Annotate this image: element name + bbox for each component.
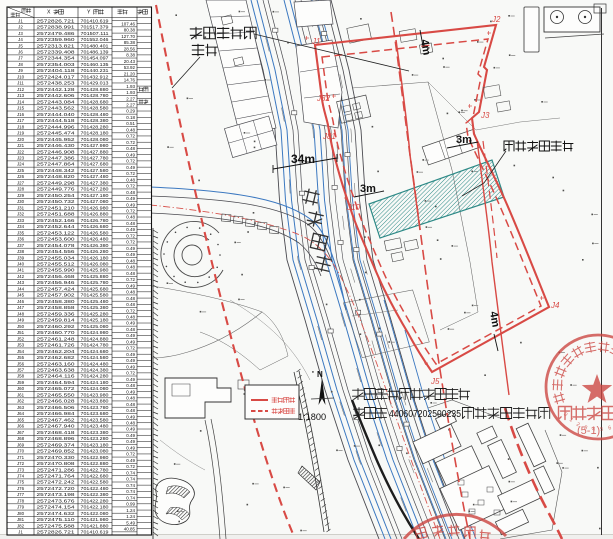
svg-text:2572450.254: 2572450.254 <box>37 193 76 198</box>
svg-text:127.70: 127.70 <box>121 34 135 39</box>
svg-text:0.74: 0.74 <box>126 489 135 494</box>
svg-text:0.48: 0.48 <box>126 296 135 301</box>
svg-text:J2: J2 <box>491 15 501 24</box>
svg-text:J3: J3 <box>18 31 23 36</box>
svg-text:2572459.814: 2572459.814 <box>37 318 76 323</box>
svg-text:J72: J72 <box>17 461 25 466</box>
svg-text:0.49: 0.49 <box>126 333 135 338</box>
svg-text:2572448.342: 2572448.342 <box>37 168 76 173</box>
svg-text:701423.280: 701423.280 <box>81 436 110 441</box>
svg-text:2572445.952: 2572445.952 <box>37 137 76 142</box>
svg-text:2572444.040: 2572444.040 <box>37 112 76 117</box>
svg-text:2572456.468: 2572456.468 <box>37 274 76 279</box>
svg-text:8.38: 8.38 <box>126 53 135 58</box>
svg-text:2572838.991: 2572838.991 <box>37 25 76 30</box>
svg-text:J53: J53 <box>17 343 25 348</box>
svg-text:J48: J48 <box>17 311 25 316</box>
svg-text:2572826.721: 2572826.721 <box>37 530 76 535</box>
svg-text:701425.380: 701425.380 <box>81 305 110 310</box>
svg-text:J54: J54 <box>17 349 25 354</box>
svg-text:701426.080: 701426.080 <box>81 262 110 267</box>
svg-text:J44: J44 <box>17 286 25 291</box>
svg-text:701428.680: 701428.680 <box>81 99 110 104</box>
svg-text:701422.980: 701422.980 <box>81 455 110 460</box>
svg-text:0.49: 0.49 <box>126 364 135 369</box>
svg-text:0.48: 0.48 <box>126 402 135 407</box>
svg-text:0.49: 0.49 <box>126 202 135 207</box>
svg-text:2572460.292: 2572460.292 <box>37 324 76 329</box>
svg-text:2572438.253: 2572438.253 <box>37 81 76 86</box>
svg-text:J10: J10 <box>346 203 360 212</box>
svg-text:J58: J58 <box>17 374 25 379</box>
svg-text:701424.480: 701424.480 <box>81 361 110 366</box>
svg-text:5.49: 5.49 <box>126 520 135 525</box>
svg-text:2572469.374: 2572469.374 <box>37 442 76 447</box>
svg-text:701410.619: 701410.619 <box>81 530 110 535</box>
svg-text:X: X <box>47 10 51 16</box>
svg-text:701425.080: 701425.080 <box>81 324 110 329</box>
svg-text:J77: J77 <box>17 492 25 497</box>
svg-text:J27: J27 <box>17 180 25 185</box>
svg-text:0.48: 0.48 <box>126 383 135 388</box>
svg-text:J23: J23 <box>17 156 25 161</box>
svg-text:0.48: 0.48 <box>126 408 135 413</box>
svg-text:0.74: 0.74 <box>126 483 135 488</box>
svg-text:J73: J73 <box>17 467 25 472</box>
svg-text:0.48: 0.48 <box>126 290 135 295</box>
svg-text:J50: J50 <box>17 324 25 329</box>
svg-text:1.93: 1.93 <box>126 84 135 89</box>
svg-text:701427.080: 701427.080 <box>81 199 110 204</box>
svg-text:2572470.808: 2572470.808 <box>37 461 76 466</box>
svg-text:0.72: 0.72 <box>126 308 135 313</box>
svg-text:0.49: 0.49 <box>126 339 135 344</box>
svg-text:701421.880: 701421.880 <box>81 523 110 528</box>
svg-text:0.49: 0.49 <box>126 152 135 157</box>
svg-text:2572466.028: 2572466.028 <box>37 399 76 404</box>
svg-text:701424.780: 701424.780 <box>81 343 110 348</box>
svg-text:0.48: 0.48 <box>126 177 135 182</box>
svg-text:J68: J68 <box>17 436 25 441</box>
svg-text:701427.180: 701427.180 <box>81 193 110 198</box>
svg-text:J7: J7 <box>18 56 23 61</box>
svg-text:J37: J37 <box>17 243 25 248</box>
svg-text:0.72: 0.72 <box>126 346 135 351</box>
svg-text:701425.480: 701425.480 <box>81 299 110 304</box>
svg-text:0.48: 0.48 <box>126 396 135 401</box>
svg-text:701426.580: 701426.580 <box>81 230 110 235</box>
svg-text:J25: J25 <box>17 168 25 173</box>
svg-text:0.48: 0.48 <box>126 190 135 195</box>
svg-text:0.49: 0.49 <box>126 321 135 326</box>
svg-text:0.48: 0.48 <box>126 265 135 270</box>
svg-text:0.18: 0.18 <box>126 115 135 120</box>
svg-text:0.72: 0.72 <box>126 452 135 457</box>
svg-text:1.24: 1.24 <box>126 514 135 519</box>
svg-text:J13: J13 <box>17 93 25 98</box>
svg-text:J51: J51 <box>17 330 25 335</box>
svg-text:3m: 3m <box>456 134 472 146</box>
svg-text:701425.980: 701425.980 <box>81 268 110 273</box>
svg-text:J33: J33 <box>17 218 25 223</box>
svg-text:2572404.118: 2572404.118 <box>37 68 76 73</box>
svg-text:0.48: 0.48 <box>126 258 135 263</box>
svg-text:0.49: 0.49 <box>126 433 135 438</box>
svg-text:0.49: 0.49 <box>126 439 135 444</box>
svg-text:J5: J5 <box>430 377 440 386</box>
svg-text:2572453.122: 2572453.122 <box>37 230 76 235</box>
svg-text:2572467.940: 2572467.940 <box>37 424 76 429</box>
svg-text:2572444.996: 2572444.996 <box>37 124 76 129</box>
svg-text:J81: J81 <box>17 517 25 522</box>
svg-text:701426.180: 701426.180 <box>81 255 110 260</box>
svg-text:701428.280: 701428.280 <box>81 124 110 129</box>
svg-text:J21: J21 <box>17 143 25 148</box>
svg-text:0.74: 0.74 <box>126 477 135 482</box>
svg-text:701429.013: 701429.013 <box>81 81 110 86</box>
svg-text:701454.097: 701454.097 <box>81 56 110 61</box>
svg-text:0.49: 0.49 <box>126 358 135 363</box>
svg-text:0.48: 0.48 <box>126 327 135 332</box>
svg-text:0.49: 0.49 <box>126 427 135 432</box>
svg-text:701424.580: 701424.580 <box>81 355 110 360</box>
svg-text:2572469.852: 2572469.852 <box>37 449 76 454</box>
svg-text:2572454.078: 2572454.078 <box>37 243 76 248</box>
svg-text:701432.912: 701432.912 <box>81 74 110 79</box>
svg-text:2572451.688: 2572451.688 <box>37 212 76 217</box>
svg-text:701425.780: 701425.780 <box>81 280 110 285</box>
svg-text:21.20: 21.20 <box>124 71 136 76</box>
svg-text:701426.280: 701426.280 <box>81 249 110 254</box>
svg-text:0.72: 0.72 <box>126 464 135 469</box>
svg-text:0.49: 0.49 <box>126 252 135 257</box>
svg-text:0.49: 0.49 <box>126 445 135 450</box>
svg-text:701424.680: 701424.680 <box>81 349 110 354</box>
svg-text:2572461.726: 2572461.726 <box>37 343 76 348</box>
svg-text:0.49: 0.49 <box>126 458 135 463</box>
svg-text:701507.111: 701507.111 <box>81 31 110 36</box>
svg-text:J12: J12 <box>17 87 25 92</box>
svg-text:701440.231: 701440.231 <box>81 68 110 73</box>
svg-text:701427.780: 701427.780 <box>81 156 110 161</box>
svg-text:J63: J63 <box>17 405 25 410</box>
svg-text:J65: J65 <box>17 417 25 422</box>
svg-text:701424.880: 701424.880 <box>81 336 110 341</box>
svg-text:701423.180: 701423.180 <box>81 442 110 447</box>
svg-text:2572344.354: 2572344.354 <box>37 56 76 61</box>
svg-text:0.48: 0.48 <box>126 271 135 276</box>
svg-text:701422.880: 701422.880 <box>81 461 110 466</box>
svg-text:1.24: 1.24 <box>126 508 135 513</box>
svg-text:2572442.606: 2572442.606 <box>37 93 76 98</box>
svg-text:J82: J82 <box>17 523 25 528</box>
svg-text:J42: J42 <box>17 274 25 279</box>
svg-text:J41: J41 <box>17 268 25 273</box>
svg-text:2572445.474: 2572445.474 <box>37 131 76 136</box>
svg-text:0.49: 0.49 <box>126 246 135 251</box>
svg-text:J3: J3 <box>480 111 490 120</box>
svg-text:0.48: 0.48 <box>126 302 135 307</box>
svg-text:701428.880: 701428.880 <box>81 87 110 92</box>
svg-text:2572449.298: 2572449.298 <box>37 180 76 185</box>
svg-text:701424.280: 701424.280 <box>81 374 110 379</box>
svg-text:2572461.248: 2572461.248 <box>37 336 76 341</box>
svg-text:2572466.984: 2572466.984 <box>37 411 76 416</box>
svg-text:0.48: 0.48 <box>126 146 135 151</box>
svg-text:701423.780: 701423.780 <box>81 405 110 410</box>
svg-text:J82: J82 <box>316 94 330 103</box>
svg-text:0.74: 0.74 <box>126 470 135 475</box>
svg-text:J20: J20 <box>17 137 25 142</box>
svg-text:J1: J1 <box>18 18 23 23</box>
svg-text:J5: J5 <box>18 43 23 48</box>
svg-text:701427.980: 701427.980 <box>81 143 110 148</box>
svg-text:2572470.330: 2572470.330 <box>37 455 76 460</box>
svg-text:2572455.512: 2572455.512 <box>37 262 76 267</box>
svg-text:0.99: 0.99 <box>126 502 135 507</box>
svg-text:J4: J4 <box>18 37 23 42</box>
svg-text:2572464.116: 2572464.116 <box>37 374 76 379</box>
svg-text:701422.680: 701422.680 <box>81 473 110 478</box>
svg-text:2572474.632: 2572474.632 <box>37 511 76 516</box>
svg-text:J1: J1 <box>311 37 320 46</box>
svg-text:701428.080: 701428.080 <box>81 137 110 142</box>
svg-text:701425.680: 701425.680 <box>81 286 110 291</box>
svg-text:701421.980: 701421.980 <box>81 517 110 522</box>
svg-text:2572462.204: 2572462.204 <box>37 349 76 354</box>
svg-text:2572455.990: 2572455.990 <box>37 268 76 273</box>
svg-text:0.29: 0.29 <box>126 109 135 114</box>
svg-text:2572465.072: 2572465.072 <box>37 386 76 391</box>
svg-text:701410.619: 701410.619 <box>81 18 110 23</box>
svg-text:2572473.198: 2572473.198 <box>37 492 76 497</box>
svg-text:701427.880: 701427.880 <box>81 149 110 154</box>
svg-text:J75: J75 <box>17 480 25 485</box>
svg-text:701428.180: 701428.180 <box>81 131 110 136</box>
svg-text:J31: J31 <box>17 205 25 210</box>
svg-text:2572359.960: 2572359.960 <box>37 37 76 42</box>
svg-text:14.76: 14.76 <box>124 78 136 83</box>
svg-text:2572467.462: 2572467.462 <box>37 417 76 422</box>
svg-text:J62: J62 <box>17 399 25 404</box>
svg-text:0.49: 0.49 <box>126 227 135 232</box>
svg-text:0.49: 0.49 <box>126 377 135 382</box>
svg-text:701423.980: 701423.980 <box>81 392 110 397</box>
svg-text:J24: J24 <box>17 162 25 167</box>
svg-text:107.46: 107.46 <box>121 21 135 26</box>
svg-text:(5-1): (5-1) <box>577 425 600 437</box>
svg-text:2572454.556: 2572454.556 <box>37 249 76 254</box>
svg-text:J71: J71 <box>17 455 25 460</box>
svg-text:701422.180: 701422.180 <box>81 505 110 510</box>
svg-text:0.49: 0.49 <box>126 196 135 201</box>
svg-text:2572443.084: 2572443.084 <box>37 99 76 104</box>
svg-text:J69: J69 <box>17 442 25 447</box>
svg-text:2572452.166: 2572452.166 <box>37 218 76 223</box>
svg-text:2572468.896: 2572468.896 <box>37 436 76 441</box>
svg-text:701427.280: 701427.280 <box>81 187 110 192</box>
svg-text:2572339.408: 2572339.408 <box>37 50 76 55</box>
svg-text:0.72: 0.72 <box>126 209 135 214</box>
svg-text:J8: J8 <box>18 62 23 67</box>
svg-text:53.92: 53.92 <box>124 65 136 70</box>
svg-text:0.49: 0.49 <box>126 352 135 357</box>
svg-text:J74: J74 <box>17 473 25 478</box>
svg-text:2572446.430: 2572446.430 <box>37 143 76 148</box>
svg-text:2572453.600: 2572453.600 <box>37 237 76 242</box>
svg-text:J19: J19 <box>17 131 25 136</box>
svg-text:J40: J40 <box>17 262 25 267</box>
svg-text:0.72: 0.72 <box>126 134 135 139</box>
svg-text:1:1800: 1:1800 <box>298 412 326 422</box>
svg-text:J70: J70 <box>17 449 25 454</box>
svg-text:701427.480: 701427.480 <box>81 174 110 179</box>
svg-text:J38: J38 <box>17 249 25 254</box>
svg-text:5: 5 <box>600 427 603 433</box>
svg-text:J76: J76 <box>17 486 25 491</box>
svg-text:2572455.034: 2572455.034 <box>37 255 76 260</box>
svg-text:2572471.286: 2572471.286 <box>37 467 76 472</box>
svg-text:701423.480: 701423.480 <box>81 424 110 429</box>
svg-text:701427.380: 701427.380 <box>81 180 110 185</box>
svg-text:2572443.562: 2572443.562 <box>37 106 76 111</box>
svg-text:0.72: 0.72 <box>126 371 135 376</box>
svg-text:0.49: 0.49 <box>126 414 135 419</box>
svg-text:J56: J56 <box>17 361 25 366</box>
svg-text:701422.780: 701422.780 <box>81 467 110 472</box>
svg-text:2572463.160: 2572463.160 <box>37 361 76 366</box>
svg-text:J46: J46 <box>17 299 25 304</box>
svg-text:J55: J55 <box>17 355 25 360</box>
svg-text:2572452.644: 2572452.644 <box>37 224 76 229</box>
svg-text:J35: J35 <box>17 230 25 235</box>
svg-text:J32: J32 <box>17 212 25 217</box>
svg-text:N: N <box>317 370 323 379</box>
svg-text:701480.401: 701480.401 <box>81 43 110 48</box>
svg-text:440607202590235: 440607202590235 <box>389 409 461 420</box>
svg-text:J81: J81 <box>322 132 336 141</box>
svg-text:2572466.506: 2572466.506 <box>37 405 76 410</box>
svg-text:0.48: 0.48 <box>126 215 135 220</box>
svg-text:1.93: 1.93 <box>126 90 135 95</box>
svg-text:2572472.720: 2572472.720 <box>37 486 76 491</box>
svg-text:20.43: 20.43 <box>124 59 136 64</box>
svg-text:J66: J66 <box>17 424 25 429</box>
svg-text:701424.180: 701424.180 <box>81 380 110 385</box>
svg-text:701427.680: 701427.680 <box>81 162 110 167</box>
svg-text:J29: J29 <box>17 193 25 198</box>
svg-text:701426.480: 701426.480 <box>81 237 110 242</box>
svg-text:J60: J60 <box>17 386 25 391</box>
svg-text:2572460.770: 2572460.770 <box>37 330 76 335</box>
svg-text:701428.780: 701428.780 <box>81 93 110 98</box>
svg-text:J36: J36 <box>17 237 25 242</box>
svg-text:701426.980: 701426.980 <box>81 205 110 210</box>
svg-text:2572449.776: 2572449.776 <box>37 187 76 192</box>
svg-text:701425.580: 701425.580 <box>81 293 110 298</box>
svg-text:2572468.418: 2572468.418 <box>37 430 76 435</box>
svg-text:2572444.518: 2572444.518 <box>37 118 76 123</box>
svg-text:J15: J15 <box>17 106 25 111</box>
svg-text:J39: J39 <box>17 255 25 260</box>
svg-text:0.51: 0.51 <box>126 121 135 126</box>
svg-text:J2: J2 <box>18 25 23 30</box>
svg-text:J49: J49 <box>17 318 25 323</box>
svg-text:2572475.110: 2572475.110 <box>37 517 76 522</box>
svg-text:701426.680: 701426.680 <box>81 224 110 229</box>
svg-text:2572450.732: 2572450.732 <box>37 199 76 204</box>
svg-text:0.48: 0.48 <box>126 420 135 425</box>
svg-text:J45: J45 <box>17 293 25 298</box>
svg-text:0.49: 0.49 <box>126 283 135 288</box>
svg-text:2.27: 2.27 <box>126 96 135 101</box>
svg-text:J43: J43 <box>17 280 25 285</box>
svg-text:J10: J10 <box>17 74 25 79</box>
svg-text:701426.880: 701426.880 <box>81 212 110 217</box>
svg-text:2572456.946: 2572456.946 <box>37 280 76 285</box>
svg-text:80.38: 80.38 <box>124 28 136 33</box>
svg-text:701425.880: 701425.880 <box>81 274 110 279</box>
svg-text:J11: J11 <box>17 81 24 86</box>
svg-text:0.49: 0.49 <box>126 389 135 394</box>
svg-text:701428.480: 701428.480 <box>81 112 110 117</box>
svg-text:701460.135: 701460.135 <box>81 62 110 67</box>
svg-text:701428.380: 701428.380 <box>81 118 110 123</box>
svg-text:2572457.424: 2572457.424 <box>37 286 76 291</box>
svg-text:0.72: 0.72 <box>126 159 135 164</box>
svg-text:85.38: 85.38 <box>124 40 136 45</box>
svg-text:2.27: 2.27 <box>126 103 135 108</box>
svg-text:2572473.676: 2572473.676 <box>37 498 76 503</box>
svg-text:2572442.128: 2572442.128 <box>37 87 76 92</box>
svg-text:2572451.210: 2572451.210 <box>37 205 76 210</box>
svg-text:2572313.821: 2572313.821 <box>37 43 76 48</box>
svg-text:2572475.588: 2572475.588 <box>37 523 76 528</box>
svg-text:2572457.902: 2572457.902 <box>37 293 76 298</box>
svg-text:2572462.682: 2572462.682 <box>37 355 76 360</box>
svg-text:J57: J57 <box>17 367 25 372</box>
svg-text:J30: J30 <box>17 199 25 204</box>
svg-text:701424.080: 701424.080 <box>81 386 110 391</box>
svg-text:28.56: 28.56 <box>124 46 136 51</box>
svg-text:0.49: 0.49 <box>126 165 135 170</box>
svg-text:701423.380: 701423.380 <box>81 430 110 435</box>
svg-text:J52: J52 <box>17 336 25 341</box>
svg-text:J22: J22 <box>17 149 25 154</box>
svg-text:701428.580: 701428.580 <box>81 106 110 111</box>
svg-text:701423.880: 701423.880 <box>81 399 110 404</box>
svg-text:2572424.017: 2572424.017 <box>37 74 76 79</box>
svg-text:2572446.908: 2572446.908 <box>37 149 76 154</box>
svg-text:701422.580: 701422.580 <box>81 480 110 485</box>
svg-text:701486.139: 701486.139 <box>81 50 110 55</box>
svg-text:J14: J14 <box>17 99 25 104</box>
svg-text:701517.379: 701517.379 <box>81 25 110 30</box>
svg-text:J78: J78 <box>17 498 25 503</box>
svg-text:J61: J61 <box>17 392 25 397</box>
svg-text:0.72: 0.72 <box>126 140 135 145</box>
svg-text:2572354.003: 2572354.003 <box>37 62 76 67</box>
svg-text:701423.680: 701423.680 <box>81 411 110 416</box>
svg-text:40.85: 40.85 <box>124 526 136 531</box>
svg-text:2572472.242: 2572472.242 <box>37 480 76 485</box>
svg-text:J28: J28 <box>17 187 25 192</box>
svg-text:J17: J17 <box>17 118 25 123</box>
svg-text:J47: J47 <box>17 305 25 310</box>
svg-text:0.72: 0.72 <box>126 277 135 282</box>
svg-text:Y: Y <box>87 10 91 16</box>
svg-text:701422.480: 701422.480 <box>81 486 110 491</box>
